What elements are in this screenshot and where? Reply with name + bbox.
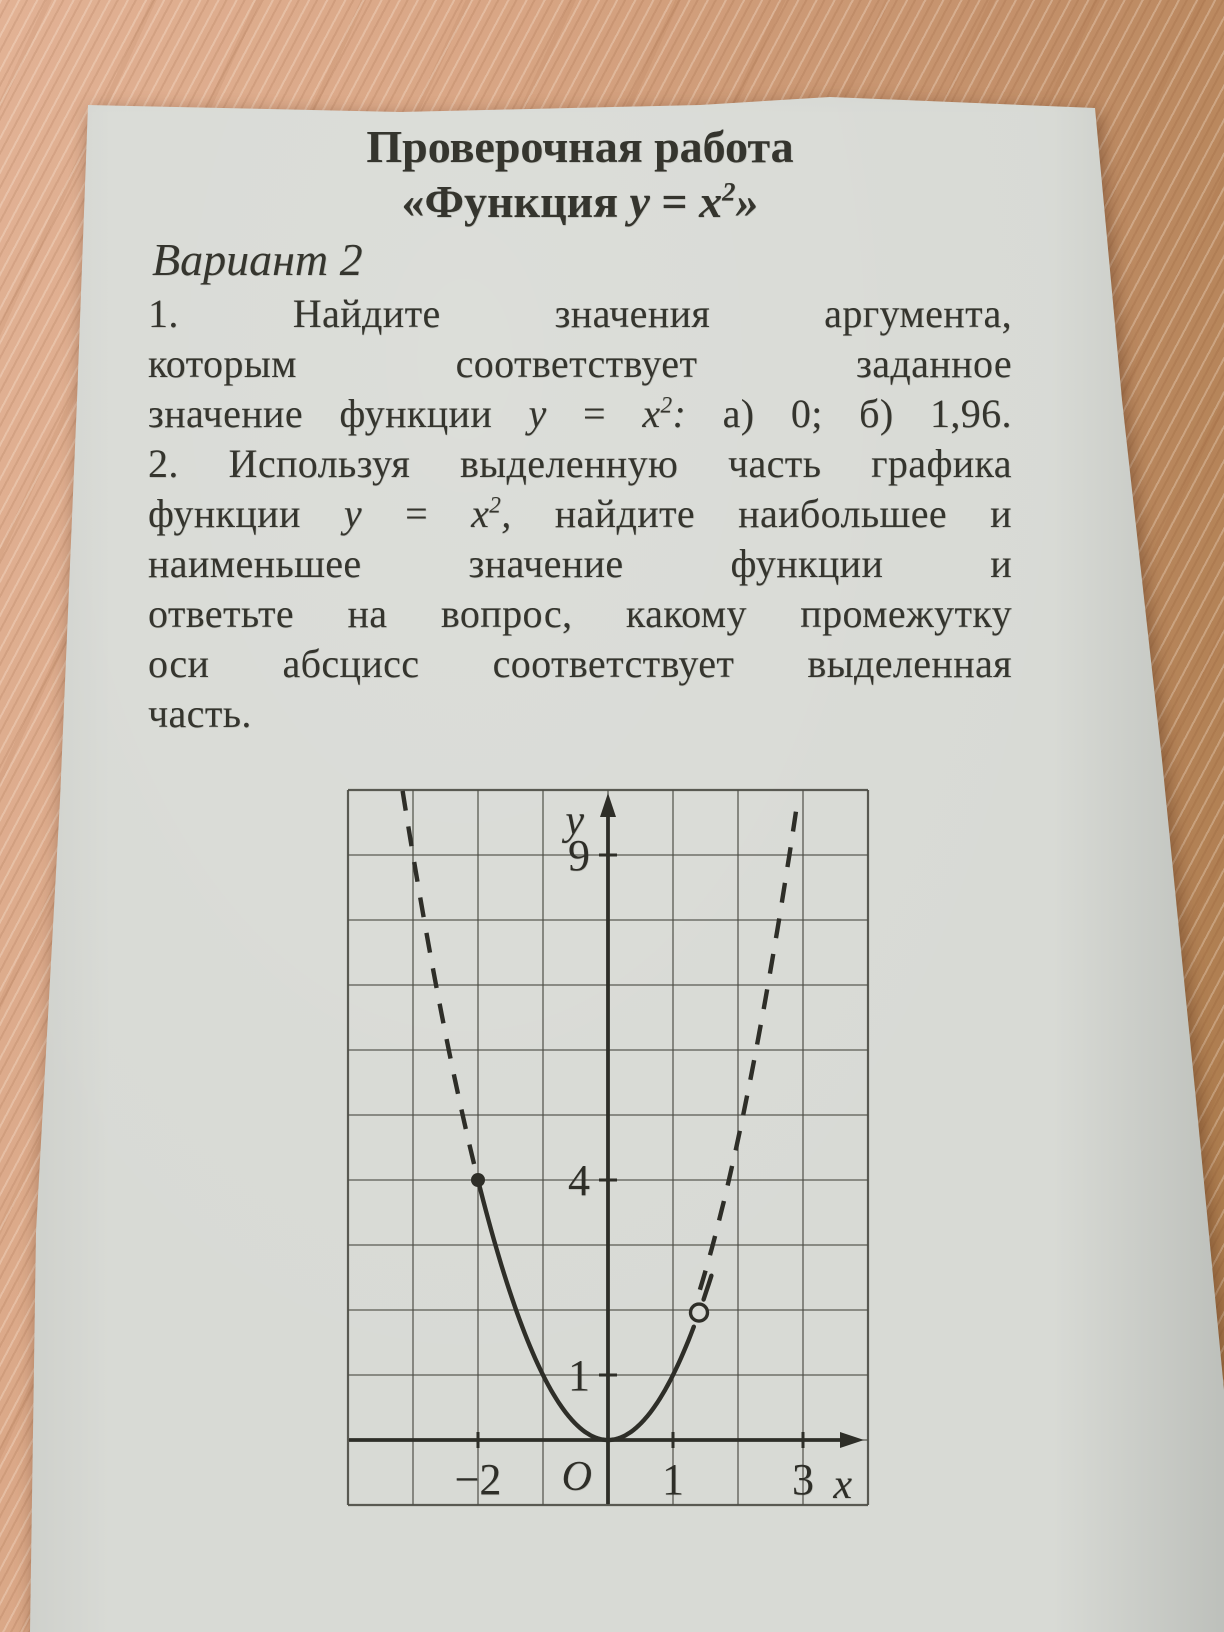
word-token: значения xyxy=(555,290,711,337)
question-text-line: значениефункцииy=x2:а)0;б)1,96. xyxy=(148,390,1012,440)
questions-text: 1.Найдитезначенияаргумента,которымсоотве… xyxy=(148,290,1012,740)
word-token: и xyxy=(990,540,1012,587)
x-tick-label: 1 xyxy=(662,1455,684,1504)
worksheet-title-line2: «Функция y = x2» xyxy=(148,175,1012,228)
math-token: x2: xyxy=(642,390,686,437)
word-token: промежутку xyxy=(800,590,1012,637)
x-axis-label: x xyxy=(832,1462,852,1507)
variant-label: Вариант 2 xyxy=(152,233,363,286)
question-text-line: наименьшеезначениефункциии xyxy=(148,540,1012,590)
function-graph-svg: 941−213Oxy xyxy=(346,788,870,1507)
math-token: y xyxy=(529,390,547,437)
word-token: оси xyxy=(148,640,209,687)
question-text-line: 2.Используявыделеннуючастьграфика xyxy=(148,440,1012,490)
word-token: Используя xyxy=(229,440,411,487)
word-token: соответствует xyxy=(493,640,735,687)
word-token: а) xyxy=(723,390,755,437)
word-token: какому xyxy=(626,590,747,637)
math-token: y xyxy=(344,490,362,537)
word-token: выделенную xyxy=(460,440,678,487)
word-token: выделенная xyxy=(807,640,1012,687)
word-token: найдите xyxy=(555,490,695,537)
question-text-line: осиабсцисссоответствуетвыделенная xyxy=(148,640,1012,690)
word-token: Найдите xyxy=(293,290,441,337)
x-tick-label: −2 xyxy=(455,1455,502,1504)
worksheet-title-line1: Проверочная работа xyxy=(148,120,1012,173)
word-token: 1. xyxy=(148,290,179,337)
word-token: функции xyxy=(339,390,492,437)
word-token: абсцисс xyxy=(282,640,419,687)
word-token: = xyxy=(405,490,428,537)
word-token: функции xyxy=(730,540,883,587)
word-token: 0; xyxy=(791,390,823,437)
desk-background: Проверочная работа «Функция y = x2» Вари… xyxy=(0,0,1224,1632)
question-text-line: часть. xyxy=(148,690,1012,740)
worksheet-content: Проверочная работа «Функция y = x2» Вари… xyxy=(0,0,1224,1632)
math-token: y xyxy=(629,176,649,227)
word-token: наибольшее xyxy=(738,490,947,537)
math-token: x2» xyxy=(699,176,758,227)
endpoint-open xyxy=(691,1304,708,1321)
word-token: 1,96. xyxy=(930,390,1012,437)
word-token: часть. xyxy=(148,691,252,736)
word-token: ответьте xyxy=(148,590,294,637)
word-token: 2. xyxy=(148,440,179,487)
endpoint-closed xyxy=(471,1173,485,1187)
word-token: аргумента, xyxy=(824,290,1012,337)
word-token: «Функция xyxy=(402,176,618,227)
word-token: соответствует xyxy=(456,340,698,387)
x-tick-label: 3 xyxy=(792,1455,814,1504)
word-token: вопрос, xyxy=(441,590,573,637)
y-tick-label: 4 xyxy=(568,1156,590,1205)
x-axis-arrow-icon xyxy=(840,1432,864,1448)
word-token: = xyxy=(661,176,687,227)
word-token: значение xyxy=(469,540,624,587)
word-token: которым xyxy=(148,340,297,387)
word-token: наименьшее xyxy=(148,540,362,587)
word-token: заданное xyxy=(856,340,1012,387)
word-token: функции xyxy=(148,490,301,537)
word-token: и xyxy=(990,490,1012,537)
parabola-dashed-right xyxy=(700,807,797,1290)
question-text-line: функцииy=x2,найдитенаибольшееи xyxy=(148,490,1012,540)
question-text-line: которымсоответствуетзаданное xyxy=(148,340,1012,390)
question-text-line: 1.Найдитезначенияаргумента, xyxy=(148,290,1012,340)
math-token: x2, xyxy=(471,490,512,537)
y-axis-arrow-icon xyxy=(600,793,616,817)
word-token: часть xyxy=(728,440,821,487)
word-token: = xyxy=(583,390,606,437)
word-token: на xyxy=(347,590,387,637)
origin-label: O xyxy=(562,1454,592,1500)
y-tick-label: 1 xyxy=(568,1351,590,1400)
y-axis-label: y xyxy=(561,798,584,844)
word-token: значение xyxy=(148,390,303,437)
function-graph: 941−213Oxy xyxy=(346,788,870,1512)
question-text-line: ответьтенавопрос,какомупромежутку xyxy=(148,590,1012,640)
word-token: б) xyxy=(859,390,893,437)
word-token: графика xyxy=(871,440,1012,487)
